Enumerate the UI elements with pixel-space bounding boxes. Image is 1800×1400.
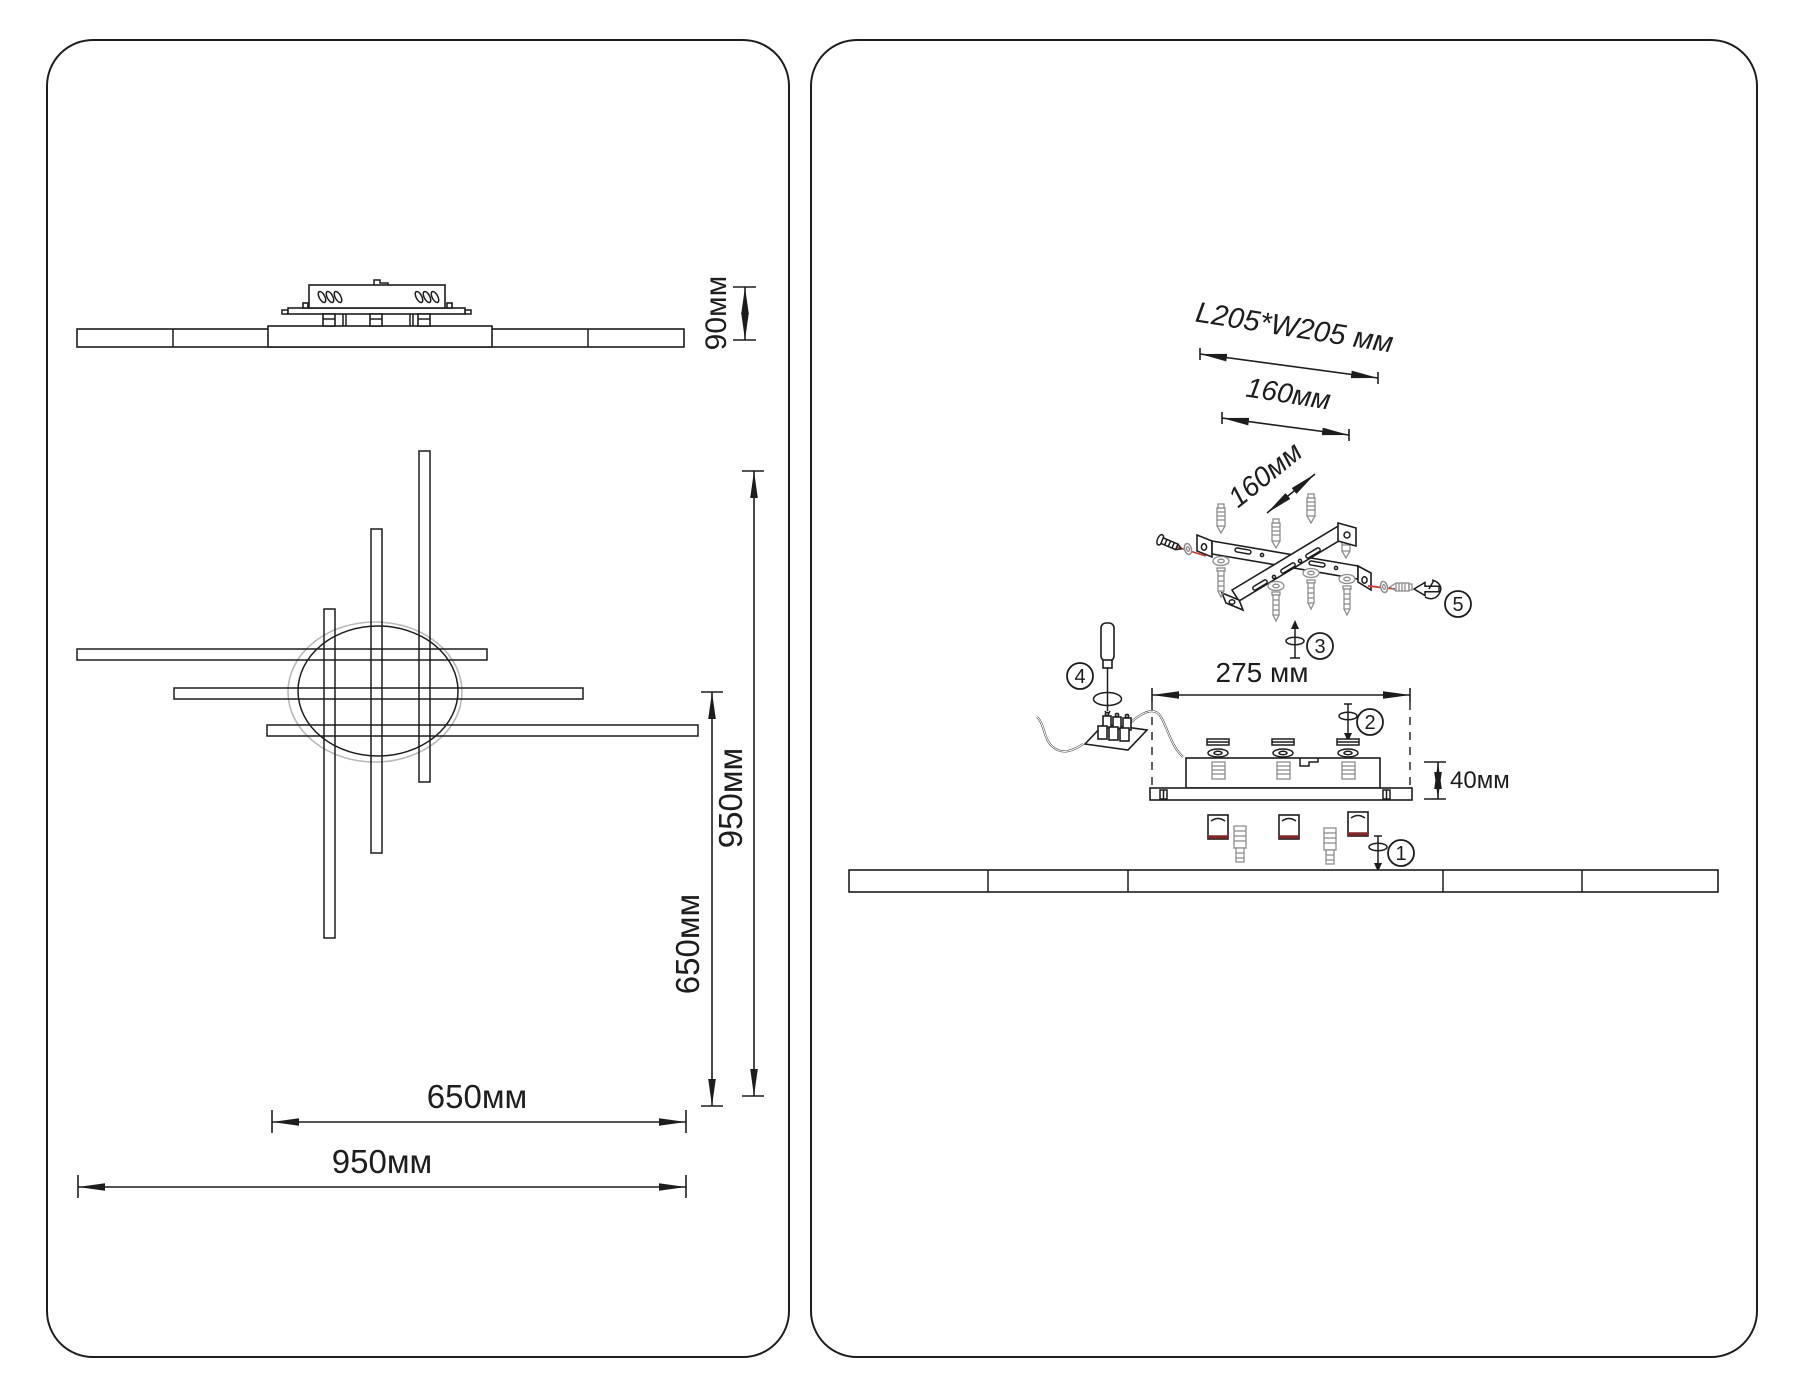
right-panel-installation-drawing: L205*W205 мм 160мм 160мм xyxy=(0,0,1800,1400)
driver-height-label: 40мм xyxy=(1450,767,1510,794)
installation-diagram: 90мм 950мм 650мм 650мм 950м xyxy=(0,0,1800,1400)
step-4-number: 4 xyxy=(1074,666,1085,688)
driver-box-flange xyxy=(1150,788,1412,800)
driver-width-label: 275 мм xyxy=(1216,657,1309,688)
terminal-cells xyxy=(1098,712,1131,741)
step-1-number: 1 xyxy=(1395,843,1406,865)
step-5-badge: 5 xyxy=(1445,591,1471,617)
right-panel-border xyxy=(811,40,1757,1357)
step-5-number: 5 xyxy=(1452,594,1463,616)
fixture-bar-bottom xyxy=(849,870,1718,892)
step-2-number: 2 xyxy=(1364,712,1375,734)
step-3-number: 3 xyxy=(1314,636,1325,658)
